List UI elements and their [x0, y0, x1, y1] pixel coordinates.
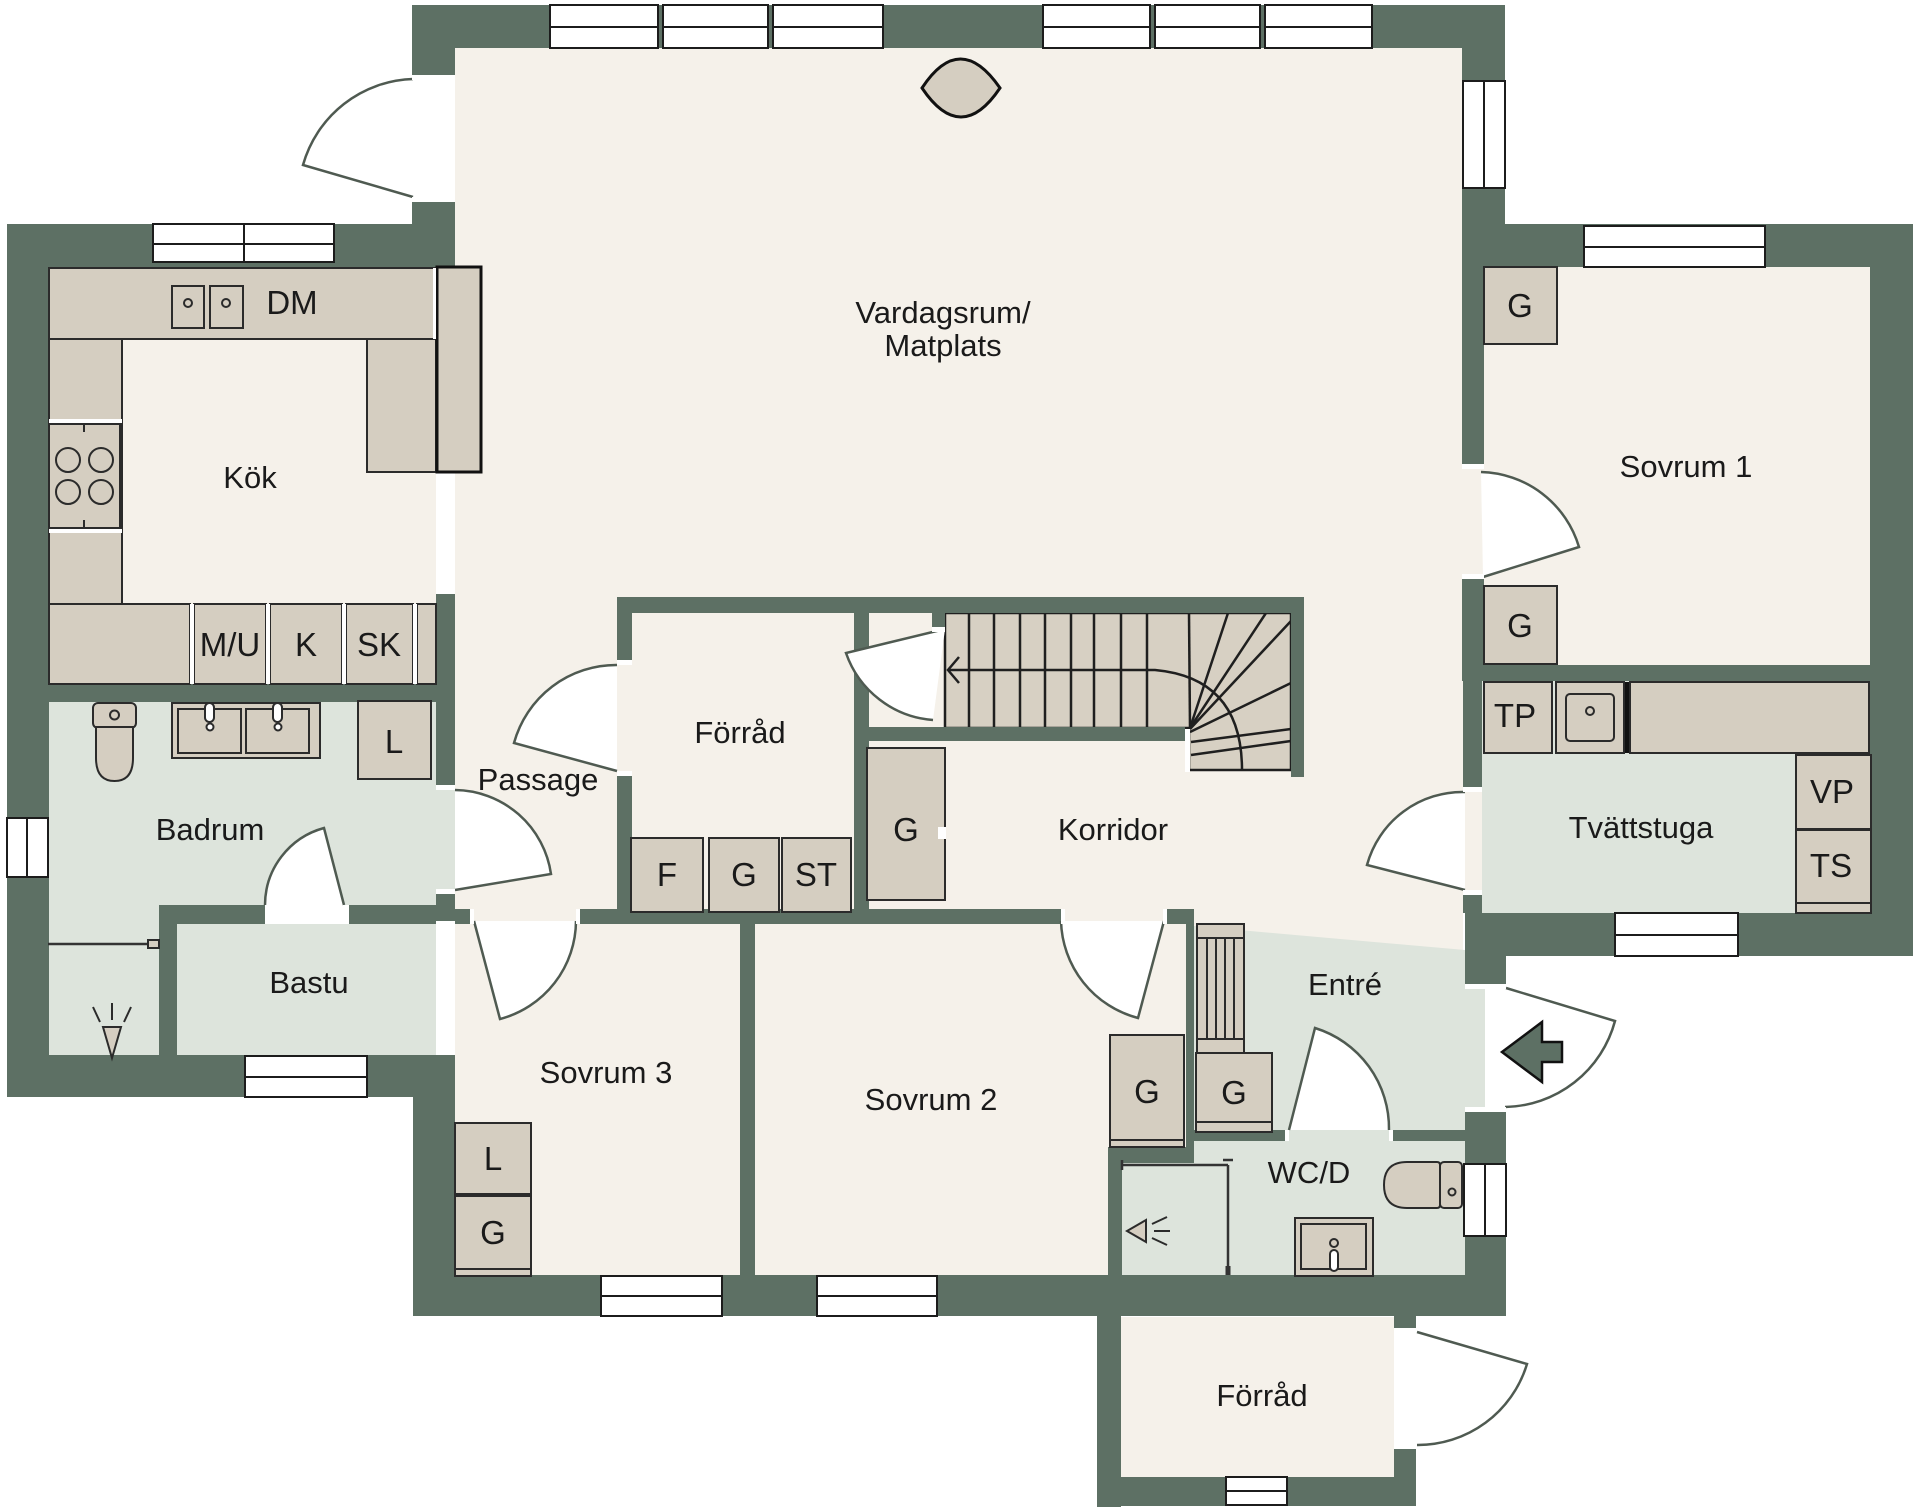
svg-text:Förråd: Förråd [694, 715, 785, 750]
svg-text:Sovrum 1: Sovrum 1 [1620, 449, 1753, 484]
svg-text:Passage: Passage [478, 762, 599, 797]
svg-text:Vardagsrum/: Vardagsrum/ [855, 295, 1031, 330]
svg-text:Kök: Kök [223, 460, 277, 495]
svg-text:Bastu: Bastu [269, 965, 348, 1000]
svg-text:ST: ST [795, 856, 837, 893]
svg-text:G: G [1507, 607, 1533, 644]
svg-text:L: L [385, 723, 403, 760]
svg-text:G: G [1134, 1073, 1160, 1110]
svg-text:Entré: Entré [1308, 967, 1382, 1002]
svg-text:K: K [295, 626, 317, 663]
svg-text:TS: TS [1810, 847, 1852, 884]
svg-text:M/U: M/U [200, 626, 261, 663]
svg-text:SK: SK [357, 626, 401, 663]
svg-text:Sovrum 3: Sovrum 3 [540, 1055, 673, 1090]
svg-text:G: G [1221, 1074, 1247, 1111]
svg-text:L: L [484, 1140, 502, 1177]
svg-text:G: G [1507, 287, 1533, 324]
svg-text:G: G [480, 1214, 506, 1251]
svg-text:Sovrum 2: Sovrum 2 [865, 1082, 998, 1117]
svg-text:DM: DM [266, 284, 317, 321]
svg-text:Korridor: Korridor [1058, 812, 1168, 847]
svg-text:WC/D: WC/D [1268, 1155, 1351, 1190]
svg-text:Förråd: Förråd [1216, 1378, 1307, 1413]
svg-text:G: G [731, 856, 757, 893]
svg-text:VP: VP [1810, 773, 1854, 810]
svg-text:Matplats: Matplats [884, 328, 1001, 363]
svg-text:F: F [657, 856, 677, 893]
svg-text:G: G [893, 811, 919, 848]
svg-text:TP: TP [1494, 697, 1536, 734]
svg-text:Badrum: Badrum [156, 812, 265, 847]
svg-text:Tvättstuga: Tvättstuga [1569, 810, 1714, 845]
